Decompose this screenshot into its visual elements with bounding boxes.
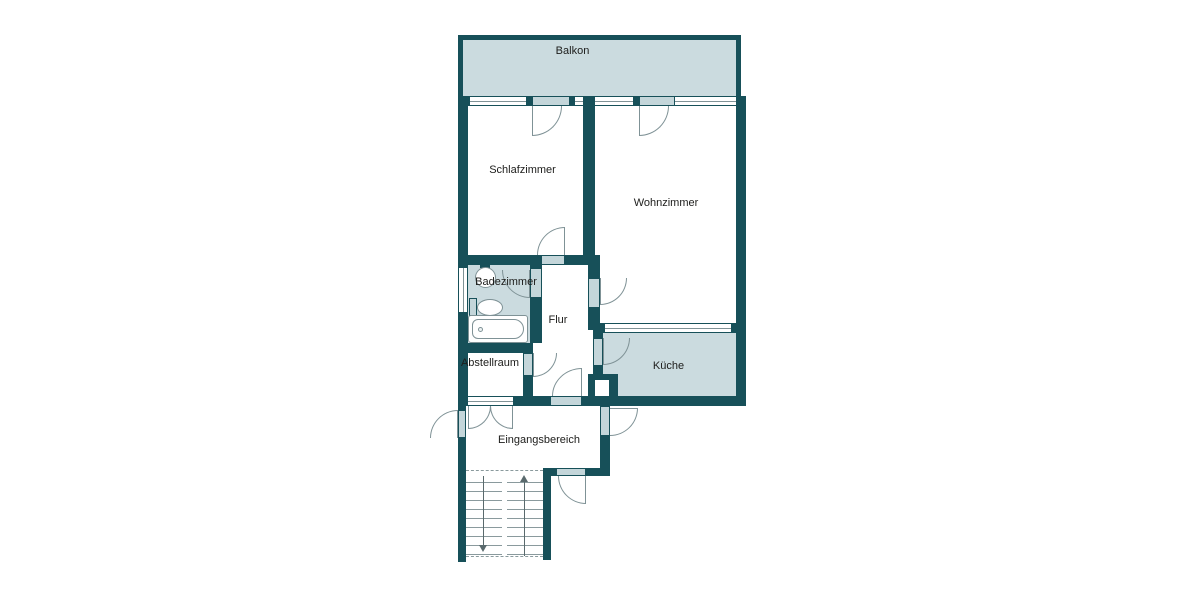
- down-arrow-shaft: [483, 476, 484, 546]
- wall-segment: [588, 255, 600, 278]
- entrance-window: [468, 396, 513, 406]
- window: [470, 96, 526, 106]
- door-swing-arc: [533, 353, 557, 377]
- label-flur: Flur: [533, 314, 583, 327]
- wall-segment: [523, 376, 533, 396]
- label-schlafzimmer: Schlafzimmer: [460, 164, 585, 177]
- toilet-tank-icon: [469, 298, 477, 316]
- kitchen-window-band: [605, 323, 731, 333]
- window: [595, 96, 633, 106]
- kitchen-bottom-wall: [603, 396, 746, 406]
- apartment-entry-door: [550, 396, 582, 406]
- stairs-down-arrow-icon: [479, 545, 487, 552]
- landing-door: [556, 468, 586, 476]
- floor-plan-canvas: { "plan": { "type": "apartment-floor-pla…: [0, 0, 1200, 600]
- wall-segment: [530, 255, 542, 268]
- entrance-right-door: [600, 406, 610, 436]
- door-swing-arc: [558, 476, 586, 504]
- outer-right-wall: [736, 96, 746, 406]
- stairs-bottom-dashline: [466, 556, 543, 559]
- door-swing-arc: [537, 227, 565, 255]
- wall-segment: [593, 323, 603, 338]
- label-abstellraum: Abstellraum: [453, 357, 527, 370]
- shaft-opening: [595, 380, 609, 397]
- toilet-icon: [477, 299, 503, 316]
- door-swing-arc: [600, 278, 627, 305]
- window: [575, 96, 583, 106]
- door-swing-arc: [610, 408, 638, 436]
- wall-segment: [600, 396, 610, 406]
- bathtub-icon: [468, 315, 528, 343]
- balcony-door-wohnzimmer: [639, 96, 675, 106]
- label-kueche: Küche: [601, 360, 736, 373]
- double-door-swing-right: [490, 406, 513, 429]
- wall-segment: [523, 343, 533, 353]
- balcony-top-wall: [458, 35, 741, 40]
- wall-segment: [513, 396, 523, 406]
- balcony-right-wall: [736, 35, 741, 98]
- label-wohnzimmer: Wohnzimmer: [598, 197, 734, 210]
- label-badezimmer: Badezimmer: [462, 276, 550, 289]
- wall-segment: [458, 255, 532, 265]
- door-swing-arc: [430, 410, 458, 438]
- bathtub-drain-icon: [478, 327, 483, 332]
- wall-bad-abstellraum: [458, 343, 533, 353]
- wall-segment: [458, 438, 466, 562]
- up-arrow-shaft: [524, 482, 525, 556]
- wohnzimmer-door: [588, 278, 600, 308]
- door-swing-arc: [532, 106, 562, 136]
- label-eingangsbereich: Eingangsbereich: [460, 434, 618, 447]
- window: [675, 96, 736, 106]
- balcony-door-schlafzimmer: [532, 96, 570, 106]
- wall-segment: [586, 468, 610, 476]
- door-swing-arc: [552, 368, 582, 396]
- stairs-top-dashline: [466, 470, 543, 473]
- label-balkon: Balkon: [460, 45, 685, 58]
- stairs-up-arrow-icon: [520, 475, 528, 482]
- bathroom-window: [458, 268, 468, 312]
- door-swing-arc: [639, 106, 669, 136]
- wall-segment: [523, 396, 550, 406]
- double-door-swing-left: [468, 406, 491, 429]
- staircase-flight-up: [507, 474, 543, 558]
- partition-schlaf-wohn: [583, 96, 595, 264]
- wall-segment: [731, 323, 736, 333]
- wall-segment: [458, 396, 468, 406]
- stairs-right-wall: [543, 468, 551, 560]
